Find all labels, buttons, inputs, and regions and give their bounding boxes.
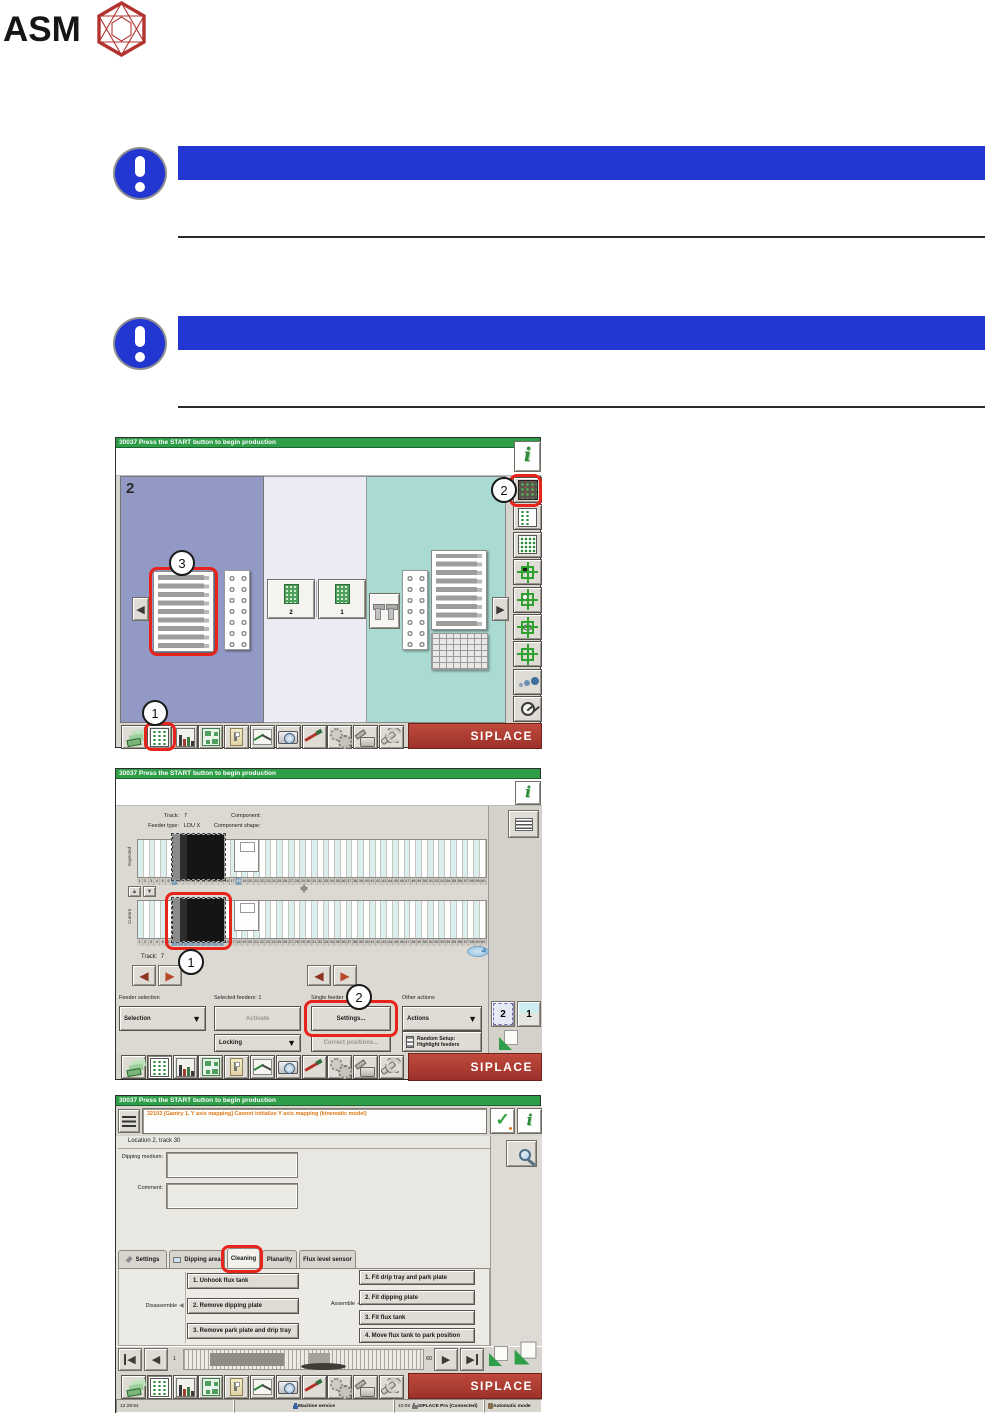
repair-pen-icon bbox=[303, 726, 325, 748]
maintenance-wrench-icon bbox=[381, 1056, 403, 1078]
service-gears-button[interactable] bbox=[327, 1055, 352, 1079]
camera-icon bbox=[278, 731, 298, 744]
current-feeder-block[interactable] bbox=[172, 898, 225, 942]
callout-1: 1 bbox=[142, 700, 168, 726]
slot-number: 60 bbox=[481, 878, 487, 885]
component-box-icon bbox=[230, 728, 243, 746]
status-title-bar: 30037 Press the START button to begin pr… bbox=[116, 1096, 540, 1106]
service-gears-icon bbox=[329, 1376, 351, 1398]
statistics-button[interactable] bbox=[250, 725, 275, 749]
feeder-table-mixed-button[interactable] bbox=[513, 504, 542, 530]
pickup-dark-component-icon bbox=[521, 566, 534, 579]
dipping-area-tab-icon bbox=[173, 1257, 181, 1263]
selection-dropdown-label: Selection bbox=[124, 1016, 151, 1022]
rotate-icon[interactable] bbox=[467, 946, 489, 957]
pcb-chip-icon bbox=[284, 584, 299, 604]
transfer-green-icon bbox=[498, 1030, 518, 1050]
repair-pen-button[interactable] bbox=[302, 725, 327, 749]
gantry-1-button[interactable]: 1 bbox=[517, 1001, 541, 1027]
status-connection: 10:09SIPLACE Pro (Connected) bbox=[394, 1399, 484, 1413]
disassemble-step-button[interactable]: 2. Remove dipping plate bbox=[187, 1298, 299, 1314]
waffle-tray-station[interactable] bbox=[431, 633, 488, 670]
board-view-icon bbox=[202, 1058, 220, 1076]
settings-button[interactable]: Settings... bbox=[311, 1006, 391, 1031]
setup-columns-icon bbox=[176, 1058, 195, 1077]
siplace-logo: SIPLACE bbox=[408, 1053, 542, 1081]
panel-divider bbox=[185, 1272, 186, 1343]
nozzle-changer-left[interactable] bbox=[224, 570, 250, 650]
activate-button[interactable]: Activate bbox=[214, 1006, 301, 1031]
pickup-dark-component-button[interactable] bbox=[513, 559, 542, 585]
asm-hexagon-logo-icon bbox=[94, 1, 149, 57]
disassemble-step-button[interactable]: 1. Unhook flux tank bbox=[187, 1273, 299, 1289]
statistics-icon bbox=[253, 1059, 272, 1075]
component-label: Component: bbox=[231, 813, 261, 819]
oiler-icon bbox=[355, 1376, 377, 1398]
right-arrow-icon bbox=[496, 603, 504, 616]
oiler-icon bbox=[355, 726, 377, 748]
gauge-icon bbox=[521, 702, 535, 716]
callout-1: 1 bbox=[178, 949, 204, 975]
chevron-down-icon: ▼ bbox=[287, 1038, 296, 1048]
transfer-button-2[interactable] bbox=[515, 1343, 541, 1371]
slot-number: 60 bbox=[481, 939, 487, 946]
maintenance-wrench-icon bbox=[381, 726, 403, 748]
status-time: 12:28:54 bbox=[116, 1399, 234, 1413]
acknowledge-button[interactable] bbox=[490, 1108, 515, 1134]
service-gears-button[interactable] bbox=[327, 1375, 352, 1399]
info-icon bbox=[515, 442, 540, 471]
assemble-step-button[interactable]: 3. Fit flux tank bbox=[359, 1310, 475, 1325]
random-setup-label: Random Setup:Highlight feeders bbox=[417, 1036, 459, 1048]
callout-3: 3 bbox=[169, 550, 195, 576]
maintenance-wrench-icon bbox=[381, 1376, 403, 1398]
splice-dots-icon bbox=[517, 671, 539, 693]
block-next-button[interactable] bbox=[333, 965, 357, 986]
block-prev-button[interactable] bbox=[307, 965, 331, 986]
comment-field[interactable] bbox=[166, 1183, 298, 1209]
nozzle-changer-right[interactable] bbox=[402, 570, 428, 650]
correct-positions-button[interactable]: Correct positions... bbox=[311, 1034, 391, 1052]
tab-flux-level-sensor[interactable]: Flux level sensor bbox=[299, 1250, 356, 1268]
machine-overview-screenshot: 30037 Press the START button to begin pr… bbox=[115, 437, 541, 748]
camera-button[interactable] bbox=[276, 1375, 301, 1399]
alarm-text: 32103 [Gantry 1, Y axis mapping] Cannot … bbox=[147, 1111, 367, 1117]
notice-title-bar bbox=[178, 146, 985, 180]
current-component-box[interactable] bbox=[234, 900, 259, 931]
first-slot-number: 1 bbox=[173, 1356, 176, 1362]
prev-position-button[interactable] bbox=[144, 1348, 168, 1371]
feeder-table-button[interactable] bbox=[147, 725, 172, 749]
maintenance-wrench-button[interactable] bbox=[379, 725, 404, 749]
setup-columns-button[interactable] bbox=[173, 725, 198, 749]
locking-dropdown[interactable]: Locking▼ bbox=[214, 1034, 301, 1052]
gantry-number-label: 2 bbox=[126, 480, 134, 497]
assemble-label: Assemble bbox=[312, 1301, 355, 1307]
dipping-medium-field[interactable] bbox=[166, 1152, 298, 1178]
notice-title-bar bbox=[178, 316, 985, 350]
gauge-button[interactable] bbox=[513, 696, 542, 722]
pcb-chip-icon bbox=[335, 584, 350, 604]
move-up-button[interactable] bbox=[128, 886, 141, 897]
boards-stack-icon bbox=[126, 737, 141, 746]
random-setup-button[interactable]: Random Setup:Highlight feeders bbox=[402, 1031, 482, 1052]
align-component-button[interactable] bbox=[513, 614, 542, 640]
pickup-light-component-icon bbox=[521, 593, 534, 606]
exclamation-icon bbox=[113, 147, 167, 200]
repair-pen-icon bbox=[303, 1376, 325, 1398]
statistics-icon bbox=[253, 1379, 272, 1395]
setup-columns-icon bbox=[176, 1378, 195, 1397]
strip-next-button[interactable] bbox=[158, 965, 182, 986]
feeder-type-label: Feeder type: bbox=[124, 823, 179, 829]
track-value: 7 bbox=[184, 813, 187, 819]
component-box-icon bbox=[230, 1378, 243, 1396]
boards-stack-button[interactable] bbox=[121, 725, 146, 749]
crosshair-icon bbox=[521, 648, 534, 661]
component-shape-label: Component shape: bbox=[214, 823, 260, 829]
oiler-button[interactable] bbox=[353, 725, 378, 749]
inspect-button[interactable] bbox=[506, 1140, 537, 1167]
transfer-green-icon bbox=[488, 1346, 508, 1366]
status-title-bar: 30037 Press the START button to begin pr… bbox=[116, 769, 540, 779]
maintenance-wrench-button[interactable] bbox=[379, 1055, 404, 1079]
disassemble-step-button[interactable]: 3. Remove park plate and drip tray bbox=[187, 1323, 299, 1339]
station-chip-2[interactable]: 2 bbox=[267, 579, 315, 619]
feeder-bank-right[interactable] bbox=[431, 550, 487, 630]
setup-columns-icon bbox=[176, 728, 195, 747]
comment-label: Comment: bbox=[116, 1185, 163, 1191]
feeder-slot[interactable] bbox=[480, 840, 486, 877]
callout-2: 2 bbox=[346, 984, 372, 1010]
repair-pen-button[interactable] bbox=[302, 1055, 327, 1079]
feeder-table-screenshot: 30037 Press the START button to begin pr… bbox=[115, 768, 541, 1080]
statistics-button[interactable] bbox=[250, 1375, 275, 1399]
setup-columns-button[interactable] bbox=[173, 1375, 198, 1399]
board-view-icon bbox=[202, 1378, 220, 1396]
boards-stack-icon bbox=[126, 1387, 141, 1396]
pickup-light-component-button[interactable] bbox=[513, 587, 542, 613]
station-chip-1[interactable]: 1 bbox=[318, 579, 366, 619]
info-button[interactable] bbox=[514, 441, 541, 472]
transfer-button-1[interactable] bbox=[488, 1346, 513, 1371]
siplace-logo: SIPLACE bbox=[408, 1373, 542, 1399]
single-feeder-section-label: Single feeder bbox=[311, 995, 343, 1001]
selected-feeders-section-label: Selected feeders: 1 bbox=[214, 995, 261, 1001]
service-gears-button[interactable] bbox=[327, 725, 352, 749]
scroll-left-button[interactable] bbox=[132, 597, 149, 621]
assemble-step-button[interactable]: 2. Fit dipping plate bbox=[359, 1290, 475, 1305]
last-slot-number: 60 bbox=[426, 1356, 432, 1362]
camera-icon bbox=[278, 1061, 298, 1074]
feeder-list-button[interactable] bbox=[508, 810, 539, 838]
assemble-step-button[interactable]: 4. Move flux tank to park position bbox=[359, 1328, 475, 1343]
hamburger-icon bbox=[122, 1116, 136, 1127]
feeder-table-button[interactable] bbox=[147, 1375, 172, 1399]
right-column bbox=[490, 1136, 542, 1346]
camera-button[interactable] bbox=[276, 725, 301, 749]
track-label: Track: bbox=[146, 813, 179, 819]
status-title-bar: 30037 Press the START button to begin pr… bbox=[116, 438, 540, 448]
location-label: Location 2, track 30 bbox=[128, 1138, 180, 1144]
strip-prev-button[interactable] bbox=[132, 965, 156, 986]
nozzle-icon bbox=[373, 604, 383, 619]
callout-2: 2 bbox=[491, 477, 517, 503]
feeder-table-icon bbox=[150, 1378, 169, 1397]
notice-divider bbox=[178, 406, 985, 408]
feeder-slot[interactable] bbox=[480, 901, 486, 938]
nozzle-icon bbox=[386, 604, 396, 619]
track-bottom-label: Track: 7 bbox=[141, 954, 164, 960]
transfer-green-icon bbox=[514, 1342, 537, 1365]
status-machine-service: Machine service bbox=[234, 1399, 394, 1413]
boards-stack-icon bbox=[126, 1067, 141, 1076]
statistics-button[interactable] bbox=[250, 1055, 275, 1079]
oiler-button[interactable] bbox=[353, 1055, 378, 1079]
board-view-button[interactable] bbox=[198, 725, 223, 749]
feeder-table-dark-icon bbox=[518, 480, 538, 500]
crosshair-button[interactable] bbox=[513, 641, 542, 667]
settings-tab-icon bbox=[126, 1256, 133, 1263]
feeder-table-icon bbox=[150, 728, 169, 747]
board-view-icon bbox=[202, 728, 220, 746]
message-strip bbox=[116, 448, 542, 476]
feeder-selection-section-label: Feeder selection bbox=[119, 995, 160, 1001]
siplace-logo: SIPLACE bbox=[408, 723, 542, 749]
magnifier-icon bbox=[519, 1149, 531, 1161]
board-view-button[interactable] bbox=[198, 1055, 223, 1079]
expected-component-box[interactable] bbox=[234, 839, 259, 872]
disassemble-arrow-icon: ◀ bbox=[179, 1302, 184, 1309]
first-position-button[interactable] bbox=[118, 1348, 142, 1371]
other-actions-section-label: Other actions bbox=[402, 995, 435, 1001]
last-position-button[interactable] bbox=[460, 1348, 484, 1371]
camera-button[interactable] bbox=[276, 1055, 301, 1079]
random-setup-icon bbox=[406, 1036, 414, 1048]
maintenance-wrench-button[interactable] bbox=[379, 1375, 404, 1399]
setup-columns-button[interactable] bbox=[173, 1055, 198, 1079]
list-icon bbox=[515, 818, 533, 831]
service-gears-icon bbox=[329, 1056, 351, 1078]
transfer-updown-icon[interactable] bbox=[299, 880, 309, 897]
nozzle-holder-station[interactable] bbox=[369, 593, 400, 629]
chevron-down-icon: ▼ bbox=[192, 1014, 201, 1024]
component-box-button[interactable] bbox=[224, 1375, 249, 1399]
asm-logo: ASM bbox=[3, 10, 83, 50]
dipping-medium-label: Dipping medium: bbox=[116, 1154, 163, 1160]
feeder-table-full-button[interactable] bbox=[513, 532, 542, 558]
selection-dropdown[interactable]: Selection▼ bbox=[119, 1006, 206, 1031]
chip-divider bbox=[316, 581, 317, 617]
statistics-icon bbox=[253, 729, 272, 745]
actions-dropdown[interactable]: Actions▼ bbox=[402, 1006, 482, 1031]
track-bottom-caption: Track: bbox=[141, 954, 157, 960]
boards-stack-button[interactable] bbox=[121, 1375, 146, 1399]
repair-pen-button[interactable] bbox=[302, 1375, 327, 1399]
feeder-bank-left[interactable] bbox=[153, 571, 214, 652]
next-position-button[interactable] bbox=[434, 1348, 458, 1371]
expected-feeder-block[interactable] bbox=[172, 834, 225, 880]
feeder-table-full-icon bbox=[518, 535, 537, 554]
message-strip bbox=[116, 779, 542, 806]
chevron-down-icon: ▼ bbox=[468, 1014, 477, 1024]
disassemble-label: Disassemble bbox=[130, 1303, 177, 1309]
repair-pen-icon bbox=[303, 1056, 325, 1078]
notice-divider bbox=[178, 236, 985, 238]
oiler-button[interactable] bbox=[353, 1375, 378, 1399]
tab-baseline bbox=[118, 1268, 490, 1269]
info-icon bbox=[520, 1111, 538, 1130]
oiler-icon bbox=[355, 1056, 377, 1078]
align-component-icon bbox=[521, 621, 534, 634]
tab-planarity[interactable]: Planarity bbox=[262, 1250, 297, 1268]
component-box-button[interactable] bbox=[224, 1055, 249, 1079]
feeder-table-icon bbox=[150, 1058, 169, 1077]
service-gears-icon bbox=[329, 726, 351, 748]
checkmark-icon bbox=[492, 1110, 514, 1132]
scroll-right-button[interactable] bbox=[492, 597, 509, 621]
menu-button[interactable] bbox=[118, 1109, 140, 1133]
dipping-unit-screenshot: 30037 Press the START button to begin pr… bbox=[115, 1095, 541, 1413]
assemble-step-button[interactable]: 1. Fit drip tray and park plate bbox=[359, 1270, 475, 1285]
gantry-2-button[interactable]: 2 bbox=[491, 1001, 515, 1027]
actions-dropdown-label: Actions bbox=[407, 1016, 429, 1022]
camera-icon bbox=[278, 1381, 298, 1394]
component-box-icon bbox=[230, 1058, 243, 1076]
station-chip-label: 1 bbox=[319, 610, 365, 616]
feeder-type-value: LDU X bbox=[184, 823, 200, 829]
info-icon bbox=[518, 784, 537, 802]
splice-dots-button[interactable] bbox=[513, 669, 542, 695]
apply-transfer-button[interactable] bbox=[498, 1030, 525, 1052]
station-chip-label: 2 bbox=[268, 610, 314, 616]
board-view-button[interactable] bbox=[198, 1375, 223, 1399]
feeder-table-dark-button[interactable] bbox=[513, 477, 542, 503]
tab-cleaning[interactable]: Cleaning bbox=[227, 1248, 260, 1268]
alarm-box[interactable]: 32103 [Gantry 1, Y axis mapping] Cannot … bbox=[142, 1108, 487, 1134]
status-mode: Automatic mode bbox=[484, 1399, 542, 1413]
boards-stack-button[interactable] bbox=[121, 1055, 146, 1079]
feeder-table-button[interactable] bbox=[147, 1055, 172, 1079]
location-divider bbox=[118, 1148, 490, 1149]
info-button[interactable] bbox=[517, 1108, 542, 1134]
component-box-button[interactable] bbox=[224, 725, 249, 749]
tab-dipping-area[interactable]: Dipping area bbox=[169, 1250, 225, 1268]
position-marker bbox=[301, 1363, 346, 1370]
locking-dropdown-label: Locking bbox=[219, 1040, 242, 1046]
exclamation-icon bbox=[113, 317, 167, 370]
track-bottom-value: 7 bbox=[161, 954, 164, 960]
feeder-table-mixed-icon bbox=[518, 508, 537, 527]
info-button[interactable] bbox=[515, 781, 541, 805]
expected-strip-label: Expected bbox=[127, 847, 132, 866]
left-arrow-icon bbox=[136, 603, 144, 616]
tab-settings[interactable]: Settings bbox=[118, 1250, 167, 1268]
move-down-button[interactable] bbox=[143, 886, 156, 897]
current-strip-label: Current bbox=[127, 909, 132, 924]
